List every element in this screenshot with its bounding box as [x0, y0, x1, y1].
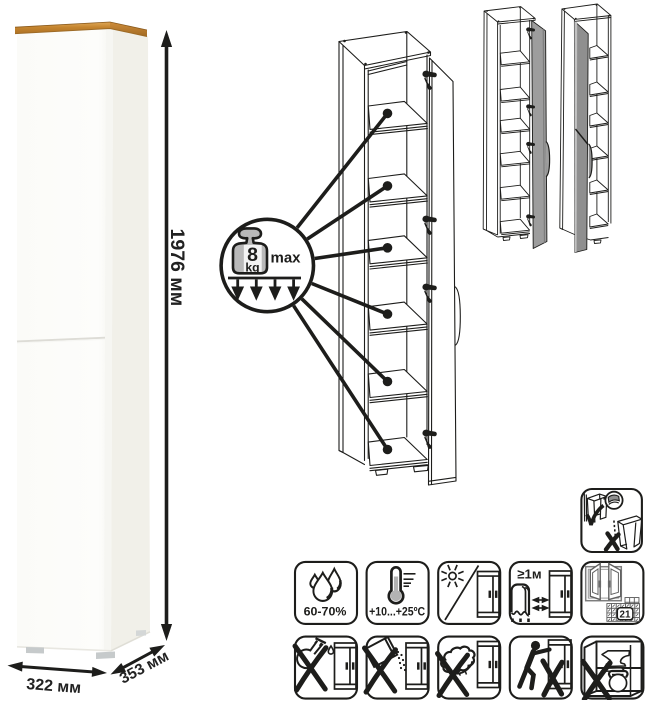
svg-text:max: max	[271, 250, 302, 267]
svg-text:21: 21	[620, 609, 631, 620]
svg-text:kg: kg	[245, 261, 259, 275]
svg-text:+10...+25ºC: +10...+25ºC	[369, 604, 425, 618]
svg-text:60-70%: 60-70%	[304, 604, 347, 618]
svg-text:≥1м: ≥1м	[517, 567, 541, 582]
svg-text:1976 мм: 1976 мм	[166, 229, 188, 307]
